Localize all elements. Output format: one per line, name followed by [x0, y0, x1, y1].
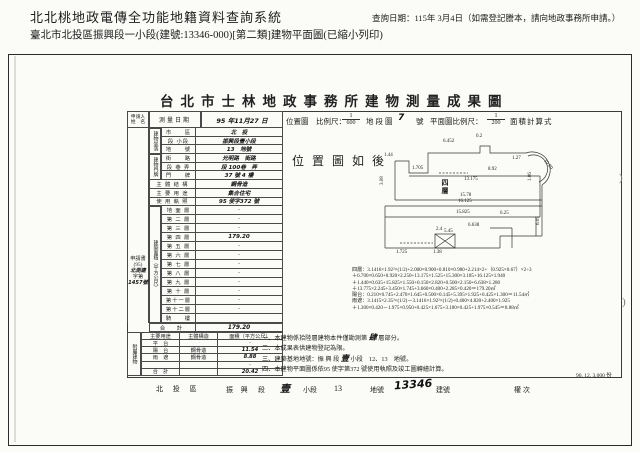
floor-row: 騎 樓 [161, 314, 283, 323]
annex-use: 陽 台 [142, 347, 180, 353]
applicant-header-line2: 姓 名 [131, 120, 145, 125]
total-label: 合 計 [150, 324, 196, 331]
application-number-note: 申請書(95)北測建字第1457號 [128, 256, 148, 286]
floor-row: 第 三 層 - [161, 224, 283, 233]
query-date: 查詢日期：115年 3月4日（如需登記謄本，請向地政事務所申請。） [372, 12, 620, 24]
sheet-title: 台北市士林地政事務所建物測量成果圖 [160, 90, 509, 110]
floor-label: 第十一層 [162, 296, 196, 304]
area-calc-label: 面積計算式 [510, 116, 553, 127]
footer-rights-label: 權次 [514, 385, 532, 395]
dimension-label: 13.175 [464, 177, 478, 182]
group-building-door: 建物門牌 [149, 154, 161, 180]
floor-label: 第 五 層 [162, 242, 196, 250]
floor-row: 第十二層 - [161, 305, 283, 314]
plan-scale-label: 平面圖比例尺： [430, 116, 483, 127]
form-row: 主 要 用 途 集合住宅 [149, 189, 283, 198]
floor-area-value: - [196, 278, 282, 286]
footer-land-unit: 地號 [370, 385, 384, 395]
dimension-label: 8.92 [488, 167, 497, 172]
floor-area-value [196, 314, 282, 322]
floor-area-value: - [196, 242, 282, 250]
form-top-row: 申請人 姓 名 測量日期 95 年11月27 日 [127, 111, 283, 128]
floor-row: 第 四 層 179.20 [161, 233, 283, 242]
annex-structure [180, 362, 218, 368]
floor-area-value: - [196, 305, 282, 313]
floor-label: 第 四 層 [162, 233, 196, 241]
form-row: 主 體 結 構 鋼骨造 [149, 180, 283, 189]
floor-plan-drawing: 四層 1.443.081.7056.4520.28.921.2710.8013.… [340, 133, 628, 267]
floor-row: 第 五 層 - [161, 242, 283, 251]
area-calculation-formulas: 四層：3.1416×1.92²×(1/2)+2.000×0.900+0.810×… [352, 267, 614, 311]
floor-row: 第 八 層 - [161, 269, 283, 278]
row-value: 振興段壹小段 [196, 137, 282, 145]
note-text: 層部分。 [377, 335, 403, 342]
form-row: 街 路 光明路 街路 [161, 154, 283, 163]
floor-area-value: - [196, 251, 282, 259]
annex-header-use: 主要用途 [142, 333, 180, 339]
row-value: 北 投 [196, 128, 282, 136]
annex-use: 雨 遮 [142, 354, 180, 360]
survey-notes: 一、本建物係拾陸層建物本件僅勘測第 肆 層部分。 二、本成果表供建物登記為限。 … [262, 333, 622, 375]
floor-area-value: - [196, 287, 282, 295]
note-text: 四、本建物平面圖係依95 使字第372 號使用執照及竣工圖轉繪計算。 [262, 366, 448, 373]
floor-area-rows: 地 面 層 - 第 二 層 - 第 三 層 - 第 四 層 179.20 第 五… [161, 206, 283, 323]
note-text: 二、本成果表供建物登記為限。 [262, 345, 349, 352]
dimension-label: 15.825 [456, 210, 470, 215]
floor-row: 第十一層 - [161, 296, 283, 305]
floor-row: 第 六 層 - [161, 251, 283, 260]
annex-structure [180, 369, 218, 375]
row-value: 37 號 4 樓 [196, 171, 282, 179]
floor-row: 第 七 層 - [161, 260, 283, 269]
footer-land-number: 13 [334, 384, 342, 393]
plan-scale-fraction: 1 200 [487, 113, 505, 126]
form-row: 段 小段 振興段壹小段 [161, 137, 283, 146]
note-line: 三、建築基地地號：振 興 段 壹 小段 12、13 地號。 [262, 354, 622, 364]
note-text: 一、本建物係拾陸層建物本件僅勘測第 [262, 335, 369, 342]
note-handwritten: 壹 [341, 354, 349, 363]
annex-use [142, 362, 180, 368]
floor-label: 第 二 層 [162, 215, 196, 223]
dimension-label: 1.06 [528, 172, 533, 181]
note-text: 小段 12、13 地號。 [349, 356, 412, 363]
row-label: 門 牌 [162, 171, 196, 179]
form-row: 段 巷 弄 段 100巷 弄 [161, 163, 283, 172]
survey-date-label: 測量日期 [149, 111, 201, 128]
annex-structure: 鋼骨造 [180, 354, 218, 360]
floor-area-value: - [196, 296, 282, 304]
note-line: 二、本成果表供建物登記為限。 [262, 343, 622, 353]
floor-label: 第 八 層 [162, 269, 196, 277]
scale-denominator: 600 [342, 119, 360, 126]
floor-area-value: - [196, 260, 282, 268]
note-line: 四、本建物平面圖係依95 使字第372 號使用執照及竣工圖轉繪計算。 [262, 364, 622, 374]
note-line: 一、本建物係拾陸層建物本件僅勘測第 肆 層部分。 [262, 333, 622, 343]
dimension-label: 6.638 [468, 223, 479, 228]
row-value: 鋼骨造 [196, 180, 282, 188]
form-row: 使 用 執 照 95 使字372 號 [149, 198, 283, 207]
scale-numerator: 1 [350, 113, 353, 119]
form-row: 市 區 北 投 [161, 128, 283, 137]
floor-area-value: 179.20 [196, 233, 282, 241]
annex-header-structure: 主體構造 [180, 333, 218, 339]
floor-label: 第十二層 [162, 305, 196, 313]
floor-label: 第 七 層 [162, 260, 196, 268]
survey-date-value: 95 年11月27 日 [201, 111, 283, 128]
row-value: 集合住宅 [196, 189, 282, 197]
row-label: 段 巷 弄 [162, 163, 196, 171]
application-note-line: 1457號 [128, 280, 148, 286]
floor-label: 第 三 層 [162, 224, 196, 232]
formula-line: ＋1.300×0.420－1.975×0.950+0.425×1.675+3.1… [352, 305, 614, 311]
floor-label: 地 面 層 [162, 206, 196, 214]
dimension-label: 1.44 [384, 153, 393, 158]
dimension-label: 1.725 [396, 250, 407, 255]
dimension-label: 1.27 [512, 156, 521, 161]
note-text: 三、建築基地地號：振 興 段 [262, 356, 341, 363]
row-label: 使 用 執 照 [150, 198, 196, 206]
dimension-label: 6.452 [443, 139, 454, 144]
annex-structure: 鋼骨造 [180, 347, 218, 353]
plan-floor-label: 四層 [440, 179, 450, 195]
footer-subsection-label: 小段 [303, 385, 317, 395]
scale-denominator: 200 [487, 119, 505, 126]
group-annex-building: 附屬建物 [127, 332, 141, 376]
district-map-number: 7 [398, 113, 404, 123]
print-run-info: 90. 12. 3,000 份 [576, 371, 612, 379]
dimension-label: 2.4 [436, 227, 442, 232]
document-subtitle: 臺北市北投區振興段一小段(建號:13346-000)[第二類]建物平面圖(已縮小… [30, 27, 383, 42]
footer-subsection-handwritten: 壹 [280, 380, 290, 395]
row-value: 95 使字372 號 [196, 198, 282, 206]
location-map-scale-fraction: 1 600 [342, 113, 360, 126]
annex-use: 合 計 [142, 369, 180, 375]
district-map-label: 地段圖 [366, 116, 395, 127]
floor-label: 第 九 層 [162, 278, 196, 286]
dimension-label: 6.05 [536, 216, 541, 225]
row-value: 光明路 街路 [196, 154, 282, 162]
district-map-unit: 號 [416, 116, 424, 127]
scan-streak [14, 56, 16, 442]
dimension-label: 1.38 [433, 250, 442, 255]
basic-info-rows: 市 區 北 投 段 小段 振興段壹小段 地 號 13 地號 街 路 光明路 街路… [161, 128, 283, 206]
dimension-label: 15.78 [460, 193, 471, 198]
floor-label: 第 六 層 [162, 251, 196, 259]
scan-artifact: ) [619, 172, 623, 184]
row-label: 街 路 [162, 154, 196, 162]
footer-building-number-handwritten: 13346 [394, 377, 433, 393]
footer-district: 北 投 區 [156, 384, 201, 394]
footer-duan: 段 [258, 385, 265, 395]
location-map-scale-label: 位置圖 比例尺： [286, 116, 346, 127]
row-label: 地 號 [162, 145, 196, 153]
floor-label: 騎 樓 [162, 314, 196, 322]
floor-row: 第 十 層 - [161, 287, 283, 296]
floor-area-value: - [196, 215, 282, 223]
dimension-label: 1.705 [412, 166, 423, 171]
floor-area-value: - [196, 206, 282, 214]
applicant-name-header: 申請人 姓 名 [127, 111, 149, 128]
dimension-label: 0.2 [476, 134, 482, 139]
scale-numerator: 1 [495, 113, 498, 119]
footer-section: 振 興 [226, 385, 251, 395]
applicant-column: 申請書(95)北測建字第1457號 [127, 128, 149, 323]
dimension-label: 3.08 [380, 176, 385, 185]
floor-row: 第 九 層 - [161, 278, 283, 287]
floor-area-value: - [196, 269, 282, 277]
annex-structure [180, 340, 218, 346]
row-label: 段 小段 [162, 137, 196, 145]
form-row: 門 牌 37 號 4 樓 [161, 171, 283, 180]
annex-use: 平 台 [142, 340, 180, 346]
floor-row: 地 面 層 - [161, 206, 283, 215]
total-area-row: 合 計 179.20 [149, 323, 283, 332]
row-label: 主 體 結 構 [150, 180, 196, 188]
total-value: 179.20 [196, 324, 282, 331]
floor-row: 第 二 層 - [161, 215, 283, 224]
group-floor-area: 建築面積（平方公尺） [149, 206, 161, 323]
floor-label: 第 十 層 [162, 287, 196, 295]
form-row: 地 號 13 地號 [161, 145, 283, 154]
floor-area-value: - [196, 224, 282, 232]
row-value: 段 100巷 弄 [196, 163, 282, 171]
row-value: 13 地號 [196, 145, 282, 153]
row-label: 市 區 [162, 128, 196, 136]
scan-artifact: ) [622, 296, 626, 308]
group-building-site: 建物坐落 [149, 128, 161, 154]
dimension-label: 5.45 [444, 229, 453, 234]
footer-building-unit: 建號 [436, 385, 450, 395]
row-label: 主 要 用 途 [150, 189, 196, 197]
system-title: 北北桃地政電傳全功能地籍資料查詢系統 [30, 7, 282, 26]
dimension-label: 6.25 [500, 211, 509, 216]
dimension-label: 16.125 [458, 199, 472, 204]
note-handwritten: 肆 [369, 333, 377, 342]
